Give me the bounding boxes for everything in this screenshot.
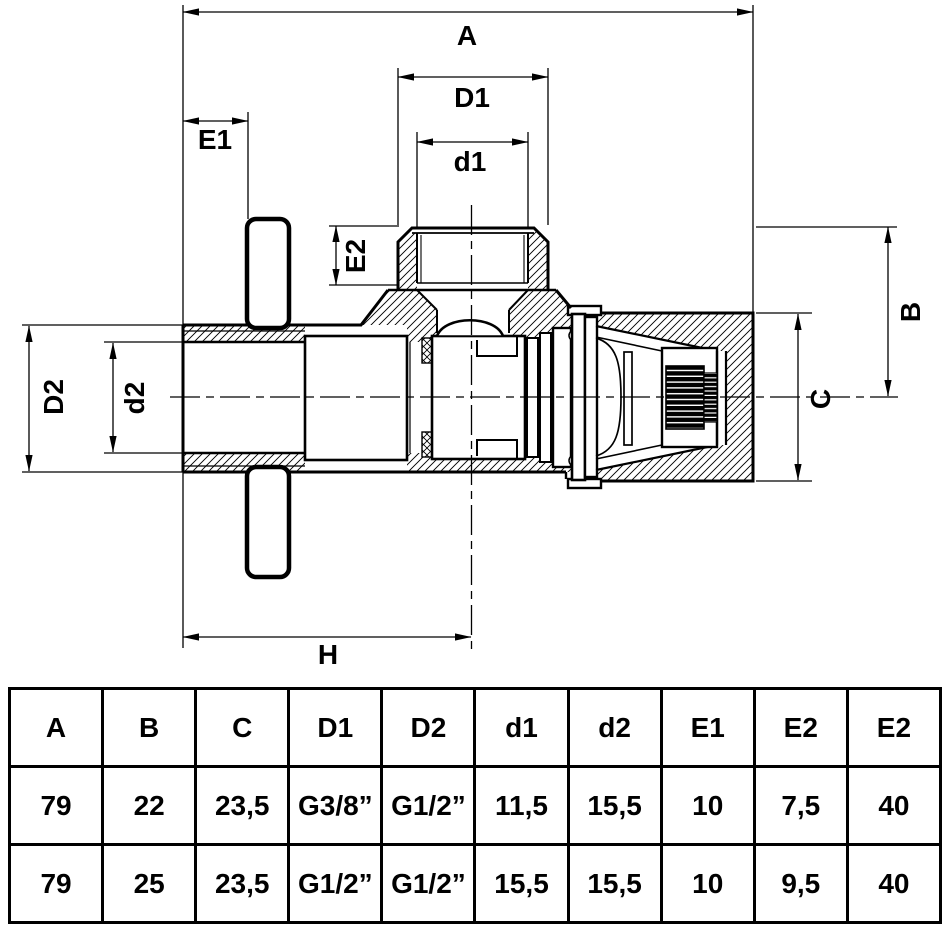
table-value-cell: G1/2” bbox=[382, 767, 475, 845]
table-value-cell: G3/8” bbox=[289, 767, 382, 845]
table-value-cell: G1/2” bbox=[289, 845, 382, 923]
dim-label-d1-inner: d1 bbox=[454, 146, 487, 177]
table-value-cell: 23,5 bbox=[196, 767, 289, 845]
compression-sleeve bbox=[305, 336, 407, 460]
table-row: 79 25 23,5 G1/2” G1/2” 15,5 15,5 10 9,5 … bbox=[10, 845, 941, 923]
dim-label-e2: E2 bbox=[340, 239, 371, 273]
table-row: 79 22 23,5 G3/8” G1/2” 11,5 15,5 10 7,5 … bbox=[10, 767, 941, 845]
table-header-cell: d2 bbox=[568, 689, 661, 767]
table-value-cell: 11,5 bbox=[475, 767, 568, 845]
page: A D1 d1 E1 H E2 B C D2 d2 A B C D1 D2 d1… bbox=[0, 0, 950, 932]
table-value-cell: 15,5 bbox=[475, 845, 568, 923]
table-header-row: A B C D1 D2 d1 d2 E1 E2 E2 bbox=[10, 689, 941, 767]
table-value-cell: 79 bbox=[10, 845, 103, 923]
dim-label-d2-inner: d2 bbox=[119, 382, 150, 415]
table-header-cell: E1 bbox=[661, 689, 754, 767]
handle-tab-bottom bbox=[247, 467, 289, 577]
table-value-cell: 79 bbox=[10, 767, 103, 845]
table-value-cell: 15,5 bbox=[568, 845, 661, 923]
table-header-cell: D2 bbox=[382, 689, 475, 767]
dim-label-d1: D1 bbox=[454, 82, 490, 113]
table-value-cell: 23,5 bbox=[196, 845, 289, 923]
dimension-table: A B C D1 D2 d1 d2 E1 E2 E2 79 22 23,5 G3… bbox=[8, 687, 942, 924]
table-header-cell: A bbox=[10, 689, 103, 767]
dim-label-d2: D2 bbox=[38, 379, 69, 415]
table-header-cell: E2 bbox=[754, 689, 847, 767]
table-header-cell: C bbox=[196, 689, 289, 767]
dim-label-b: B bbox=[895, 302, 926, 322]
table-header-cell: D1 bbox=[289, 689, 382, 767]
valve-technical-drawing: A D1 d1 E1 H E2 B C D2 d2 bbox=[0, 0, 950, 683]
handle-tab-top bbox=[247, 219, 289, 328]
table-value-cell: 40 bbox=[847, 845, 940, 923]
table-value-cell: 25 bbox=[103, 845, 196, 923]
table-header-cell: B bbox=[103, 689, 196, 767]
table-value-cell: 7,5 bbox=[754, 767, 847, 845]
table-value-cell: G1/2” bbox=[382, 845, 475, 923]
table-value-cell: 9,5 bbox=[754, 845, 847, 923]
dim-label-c: C bbox=[805, 389, 836, 409]
dim-label-e1: E1 bbox=[198, 124, 232, 155]
table-header-cell: E2 bbox=[847, 689, 940, 767]
handle bbox=[247, 219, 289, 577]
table-value-cell: 40 bbox=[847, 767, 940, 845]
dim-label-a: A bbox=[457, 20, 477, 51]
table-header-cell: d1 bbox=[475, 689, 568, 767]
table-value-cell: 15,5 bbox=[568, 767, 661, 845]
table-value-cell: 10 bbox=[661, 767, 754, 845]
table-value-cell: 22 bbox=[103, 767, 196, 845]
table-value-cell: 10 bbox=[661, 845, 754, 923]
dim-label-h: H bbox=[318, 639, 338, 670]
